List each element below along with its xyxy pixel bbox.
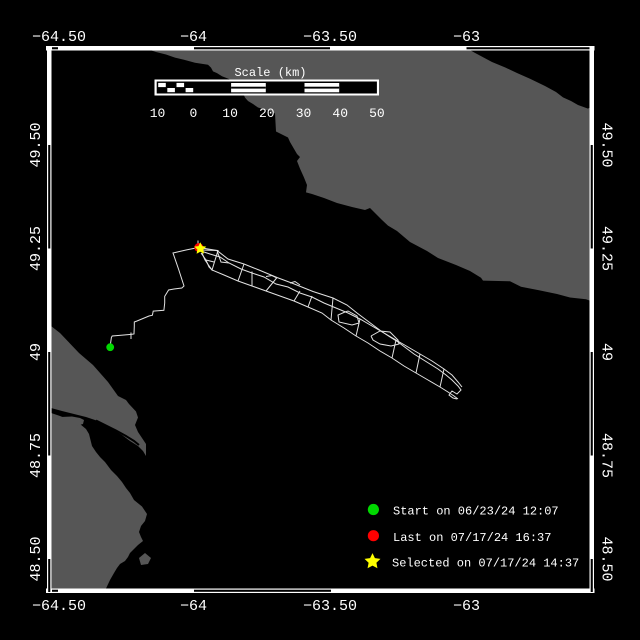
svg-text:49.50: 49.50: [28, 122, 45, 167]
svg-text:−63: −63: [453, 29, 480, 46]
svg-text:49.25: 49.25: [598, 226, 615, 271]
svg-text:−64: −64: [180, 29, 207, 46]
svg-text:−64.50: −64.50: [32, 29, 86, 46]
svg-text:48.75: 48.75: [28, 433, 45, 478]
svg-text:49.50: 49.50: [598, 122, 615, 167]
svg-text:0: 0: [189, 106, 197, 121]
svg-text:Selected on 07/17/24 14:37: Selected on 07/17/24 14:37: [392, 557, 579, 571]
svg-text:−64.50: −64.50: [32, 598, 86, 615]
svg-text:Start on 06/23/24 12:07: Start on 06/23/24 12:07: [393, 505, 559, 519]
svg-text:Last on 07/17/24 16:37: Last on 07/17/24 16:37: [393, 531, 551, 545]
svg-text:48.50: 48.50: [598, 536, 615, 581]
svg-text:40: 40: [332, 106, 348, 121]
svg-text:10: 10: [150, 106, 166, 121]
svg-text:−63: −63: [453, 598, 480, 615]
svg-text:−63.50: −63.50: [303, 29, 357, 46]
svg-text:49.25: 49.25: [28, 226, 45, 271]
svg-text:−63.50: −63.50: [303, 598, 357, 615]
svg-text:48.75: 48.75: [598, 433, 615, 478]
svg-text:49: 49: [598, 343, 615, 361]
svg-text:48.50: 48.50: [28, 536, 45, 581]
svg-text:Scale (km): Scale (km): [234, 66, 306, 80]
svg-text:20: 20: [259, 106, 275, 121]
svg-text:10: 10: [222, 106, 238, 121]
svg-text:−64: −64: [180, 598, 207, 615]
svg-text:30: 30: [296, 106, 312, 121]
svg-text:49: 49: [28, 343, 45, 361]
svg-text:50: 50: [369, 106, 385, 121]
